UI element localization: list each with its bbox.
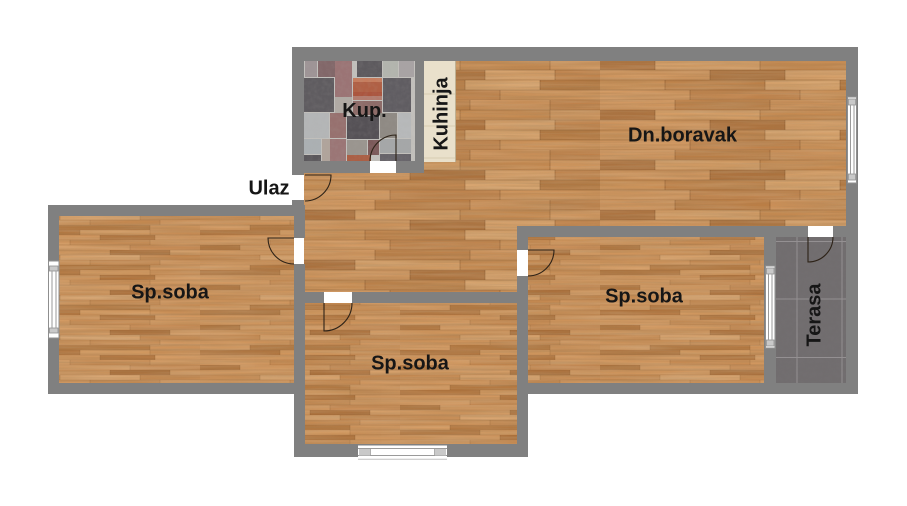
svg-text:Sp.soba: Sp.soba	[131, 282, 210, 304]
svg-text:Dn.boravak: Dn.boravak	[628, 125, 738, 147]
svg-text:Kuhinja: Kuhinja	[431, 76, 453, 150]
svg-text:Sp.soba: Sp.soba	[371, 353, 450, 375]
svg-text:Terasa: Terasa	[804, 283, 826, 347]
svg-text:Sp.soba: Sp.soba	[605, 286, 684, 308]
svg-text:Kup.: Kup.	[342, 100, 386, 122]
svg-text:Ulaz: Ulaz	[248, 178, 289, 200]
